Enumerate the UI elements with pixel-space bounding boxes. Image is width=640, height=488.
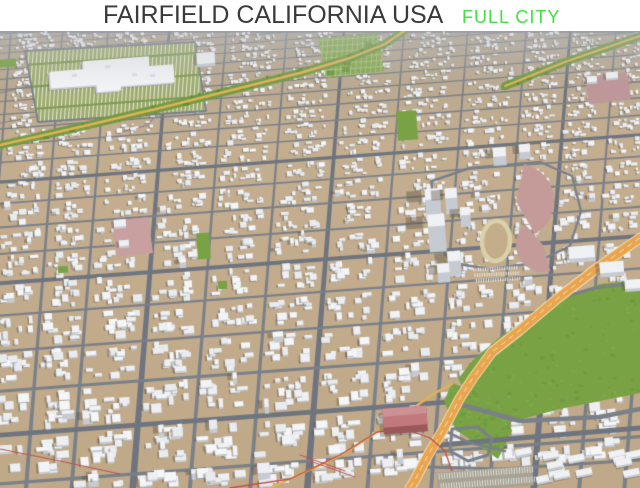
screenshot-root: FAIRFIELD CALIFORNIA USA FULL CITY xyxy=(0,0,640,488)
subtitle-label: FULL CITY xyxy=(462,6,560,28)
title-bar: FAIRFIELD CALIFORNIA USA FULL CITY xyxy=(0,0,640,31)
city-3d-render xyxy=(0,31,640,488)
page-title: FAIRFIELD CALIFORNIA USA xyxy=(103,1,443,30)
